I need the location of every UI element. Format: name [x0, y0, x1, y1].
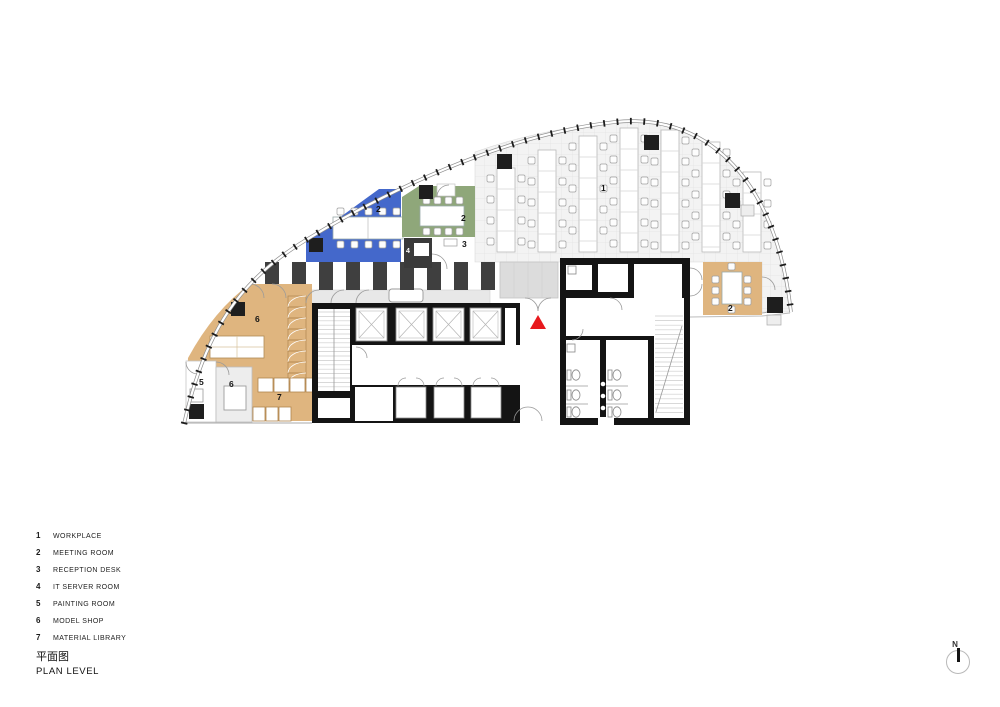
north-arrow: N [944, 640, 972, 674]
label-meeting-tan: 2 [728, 303, 733, 313]
legend-num: 2 [36, 548, 53, 557]
legend-num: 1 [36, 531, 53, 540]
label-reception: 3 [462, 239, 467, 249]
entry-marker [530, 315, 546, 329]
core-left [312, 303, 520, 423]
label-meeting-blue: 2 [376, 204, 381, 214]
legend-num: 6 [36, 616, 53, 625]
label-workplace: 1 [601, 183, 606, 193]
north-circle-icon [946, 650, 970, 674]
legend-item: 2MEETING ROOM [36, 548, 126, 565]
page: { "title": { "zh": "平面图", "en": "PLAN LE… [0, 0, 1000, 707]
label-model-shop-booth: 6 [229, 379, 234, 389]
legend-num: 4 [36, 582, 53, 591]
label-material-library: 7 [277, 392, 282, 402]
label-meeting-green: 2 [461, 213, 466, 223]
legend-num: 7 [36, 633, 53, 642]
title-block: 平面图 PLAN LEVEL [36, 648, 99, 677]
label-painting: 5 [199, 377, 204, 387]
legend-item: 3RECEPTION DESK [36, 565, 126, 582]
plan-title-zh: 平面图 [36, 648, 99, 664]
legend-num: 5 [36, 599, 53, 608]
legend-item: 1WORKPLACE [36, 531, 126, 548]
legend-item: 5PAINTING ROOM [36, 599, 126, 616]
legend-label: WORKPLACE [53, 533, 102, 540]
floor-plan-svg: 1 2 2 3 4 2 5 6 6 7 [0, 0, 1000, 707]
legend-item: 4IT SERVER ROOM [36, 582, 126, 599]
vestibule [500, 262, 558, 298]
label-model-shop: 6 [255, 314, 260, 324]
legend-label: MEETING ROOM [53, 550, 114, 557]
legend-item: 6MODEL SHOP [36, 616, 126, 633]
label-it-server: 4 [406, 248, 410, 255]
legend-label: RECEPTION DESK [53, 567, 121, 574]
plan-title-en: PLAN LEVEL [36, 666, 99, 677]
core-right [560, 258, 690, 425]
legend-num: 3 [36, 565, 53, 574]
north-label: N [938, 640, 972, 649]
legend-label: PAINTING ROOM [53, 601, 115, 608]
legend-label: MATERIAL LIBRARY [53, 635, 126, 642]
legend: 1WORKPLACE 2MEETING ROOM 3RECEPTION DESK… [36, 531, 126, 650]
reception-desk [389, 289, 423, 302]
legend-label: IT SERVER ROOM [53, 584, 120, 591]
legend-label: MODEL SHOP [53, 618, 104, 625]
